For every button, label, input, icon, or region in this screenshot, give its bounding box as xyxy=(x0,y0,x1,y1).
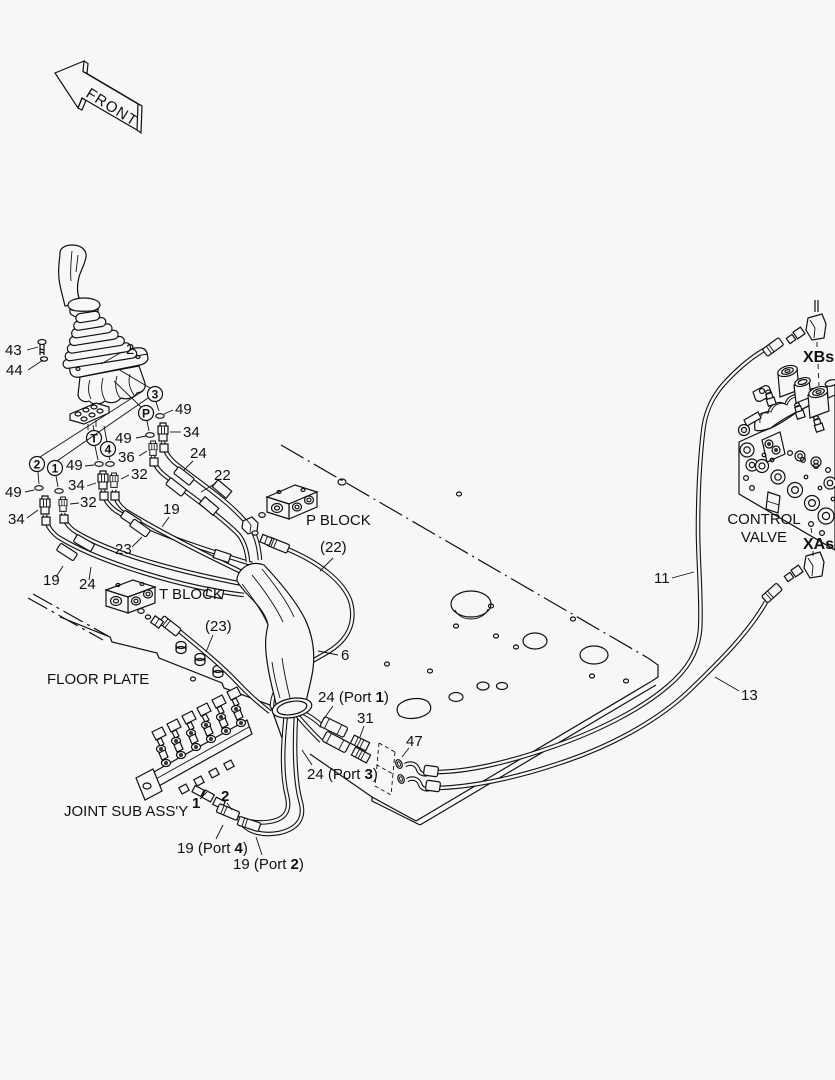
svg-text:19 (Port 2): 19 (Port 2) xyxy=(233,856,304,873)
svg-text:34: 34 xyxy=(8,511,25,528)
svg-text:VALVE: VALVE xyxy=(741,529,787,546)
svg-text:43: 43 xyxy=(5,342,22,359)
svg-text:2: 2 xyxy=(126,341,134,358)
svg-text:49: 49 xyxy=(66,457,83,474)
svg-text:CONTROL: CONTROL xyxy=(727,511,800,528)
svg-text:23: 23 xyxy=(115,541,132,558)
svg-text:(23): (23) xyxy=(205,618,232,635)
svg-text:34: 34 xyxy=(183,424,200,441)
svg-text:P: P xyxy=(142,407,150,421)
svg-text:JOINT SUB ASS'Y: JOINT SUB ASS'Y xyxy=(64,803,188,820)
svg-text:XBs: XBs xyxy=(803,349,834,366)
svg-text:2: 2 xyxy=(34,458,41,472)
svg-text:47: 47 xyxy=(406,733,423,750)
svg-text:13: 13 xyxy=(741,687,758,704)
svg-text:1: 1 xyxy=(192,795,200,812)
svg-text:4: 4 xyxy=(105,443,112,457)
svg-text:34: 34 xyxy=(68,477,85,494)
svg-text:P BLOCK: P BLOCK xyxy=(306,512,371,529)
svg-text:XAs: XAs xyxy=(803,536,834,553)
svg-text:24 (Port 3): 24 (Port 3) xyxy=(307,766,378,783)
svg-text:FLOOR PLATE: FLOOR PLATE xyxy=(47,671,149,688)
svg-text:49: 49 xyxy=(5,484,22,501)
svg-text:49: 49 xyxy=(115,430,132,447)
svg-text:6: 6 xyxy=(341,647,349,664)
svg-text:19 (Port 4): 19 (Port 4) xyxy=(177,840,248,857)
svg-text:31: 31 xyxy=(357,710,374,727)
svg-text:49: 49 xyxy=(175,401,192,418)
svg-text:36: 36 xyxy=(118,449,135,466)
svg-text:44: 44 xyxy=(6,362,23,379)
svg-text:32: 32 xyxy=(80,494,97,511)
svg-text:(22): (22) xyxy=(320,539,347,556)
svg-text:T BLOCK: T BLOCK xyxy=(159,586,223,603)
svg-text:11: 11 xyxy=(654,570,670,587)
svg-text:2: 2 xyxy=(221,788,229,805)
svg-text:19: 19 xyxy=(163,501,180,518)
svg-text:3: 3 xyxy=(152,388,159,402)
svg-text:24: 24 xyxy=(79,576,96,593)
svg-text:22: 22 xyxy=(214,467,231,484)
svg-text:1: 1 xyxy=(52,462,59,476)
svg-text:24: 24 xyxy=(190,445,207,462)
svg-text:T: T xyxy=(90,432,98,446)
svg-text:24 (Port 1): 24 (Port 1) xyxy=(318,689,389,706)
svg-text:32: 32 xyxy=(131,466,148,483)
